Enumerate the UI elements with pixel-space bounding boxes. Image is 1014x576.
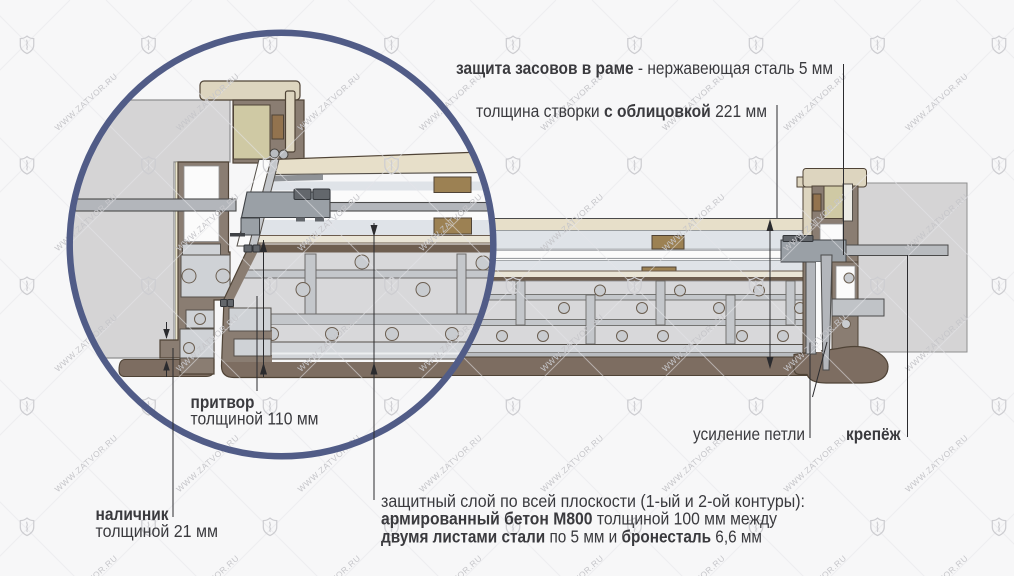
svg-text:толщиной 110 мм: толщиной 110 мм: [191, 409, 319, 429]
svg-text:толщина створки с облицовкой 2: толщина створки с облицовкой 221 мм: [476, 101, 767, 121]
svg-text:двумя листами стали по 5 мм и: двумя листами стали по 5 мм и бронесталь…: [381, 526, 762, 546]
svg-text:защита засовов в раме - нержав: защита засовов в раме - нержавеющая стал…: [456, 58, 833, 78]
svg-text:толщиной 21 мм: толщиной 21 мм: [96, 521, 219, 541]
svg-text:крепёж: крепёж: [846, 424, 901, 444]
svg-text:усиление петли: усиление петли: [693, 424, 805, 444]
